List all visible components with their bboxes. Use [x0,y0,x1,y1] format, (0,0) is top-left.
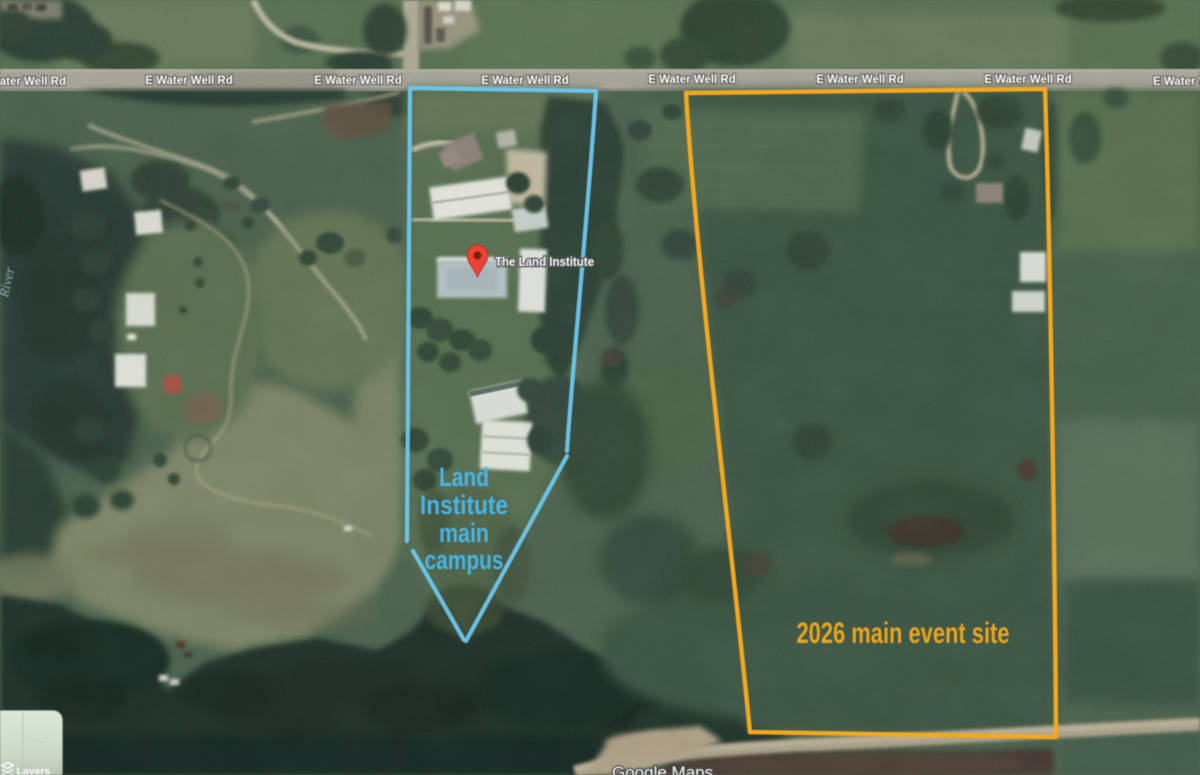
svg-text:main: main [439,518,489,548]
svg-text:ater Well Rd: ater Well Rd [0,76,66,88]
svg-text:E Water Well Rd: E Water Well Rd [816,74,904,86]
svg-text:The Land Institute: The Land Institute [495,254,594,269]
svg-text:E Water W: E Water W [1153,76,1200,88]
svg-text:E Water Well Rd: E Water Well Rd [145,75,233,87]
svg-text:E Water Well Rd: E Water Well Rd [984,74,1072,86]
svg-text:Land: Land [439,462,489,492]
svg-text:E Water Well Rd: E Water Well Rd [314,75,402,87]
svg-text:E Water Well Rd: E Water Well Rd [481,75,569,87]
svg-text:Institute: Institute [420,490,508,520]
svg-text:campus: campus [425,545,504,575]
svg-text:2026 main event site: 2026 main event site [797,617,1010,650]
svg-text:Layers: Layers [17,766,51,775]
svg-text:E Water Well Rd: E Water Well Rd [648,74,736,86]
svg-text:Google Maps: Google Maps [612,763,713,775]
